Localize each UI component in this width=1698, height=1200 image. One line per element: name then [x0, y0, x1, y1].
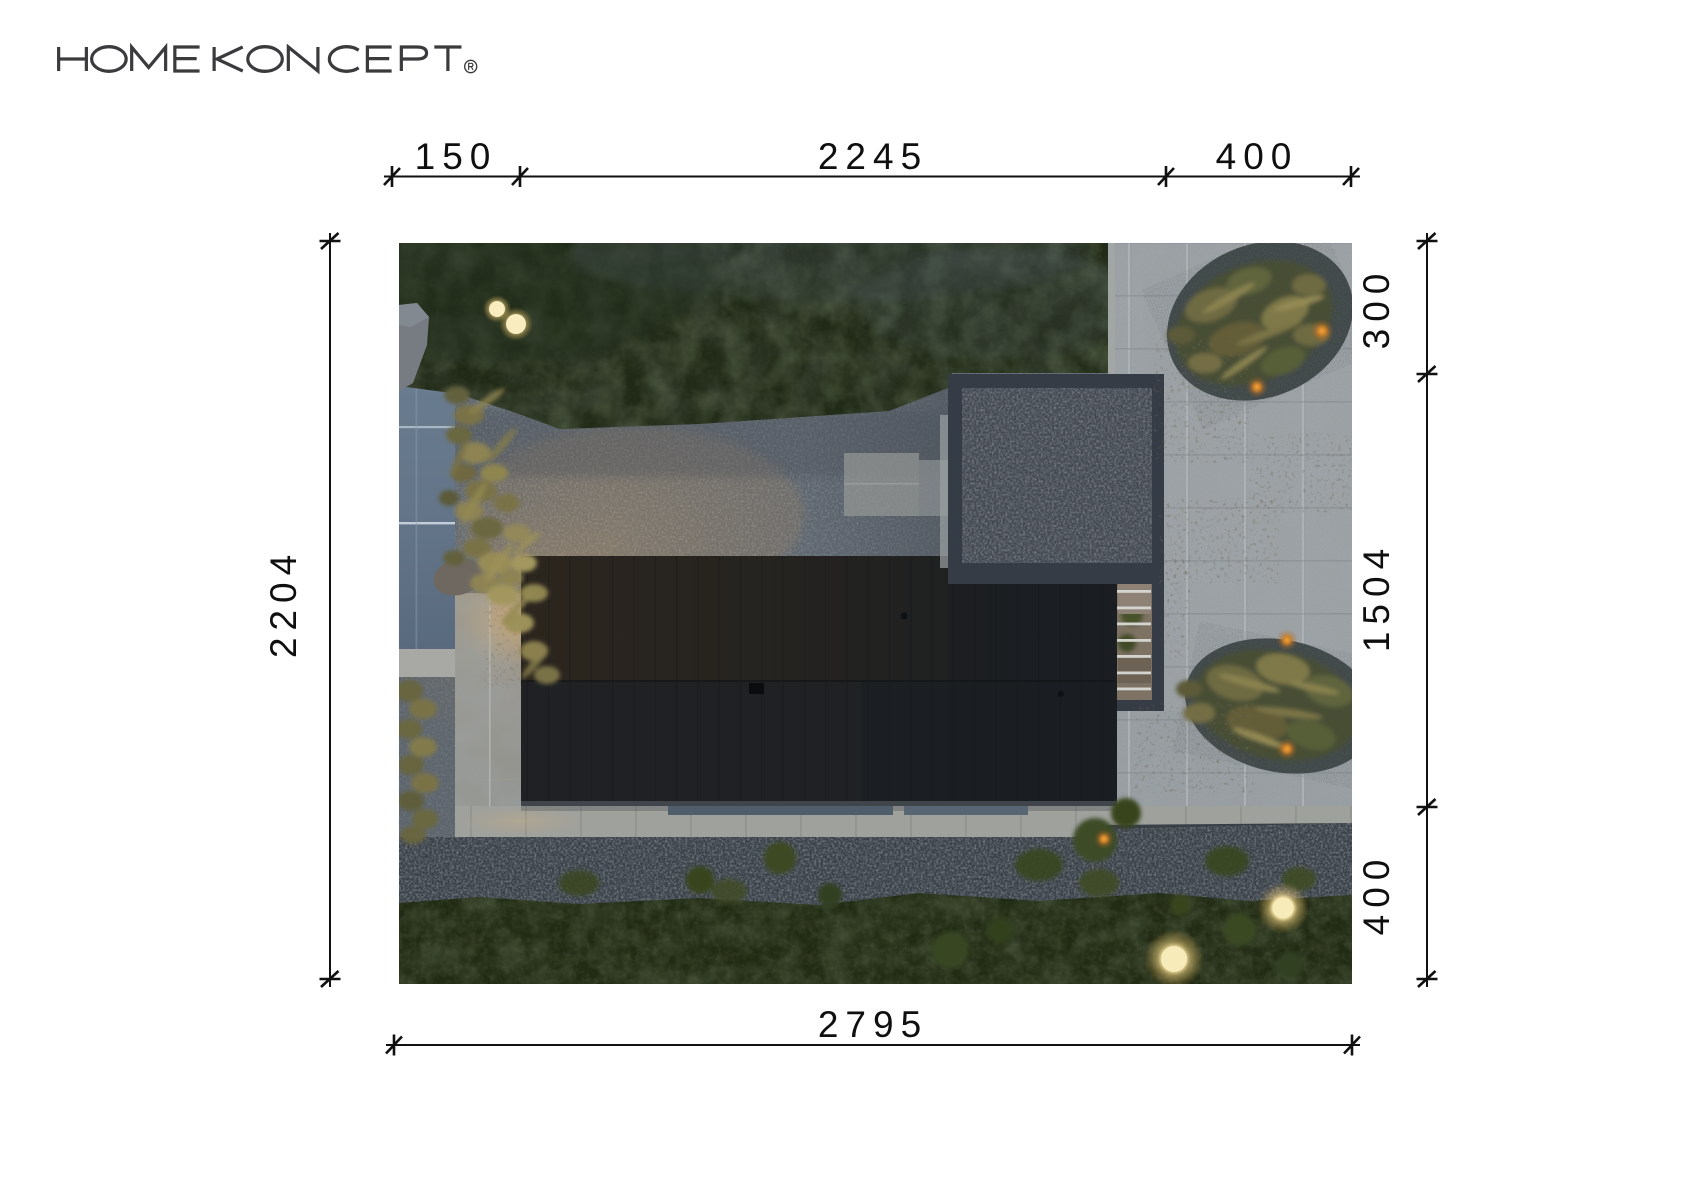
- svg-text:2245: 2245: [818, 136, 928, 177]
- svg-text:400: 400: [1356, 853, 1397, 936]
- svg-text:1504: 1504: [1356, 542, 1397, 652]
- svg-text:150: 150: [415, 136, 498, 177]
- svg-text:300: 300: [1356, 267, 1397, 350]
- svg-text:2795: 2795: [818, 1004, 928, 1045]
- svg-text:400: 400: [1216, 136, 1299, 177]
- svg-text:2204: 2204: [263, 548, 304, 658]
